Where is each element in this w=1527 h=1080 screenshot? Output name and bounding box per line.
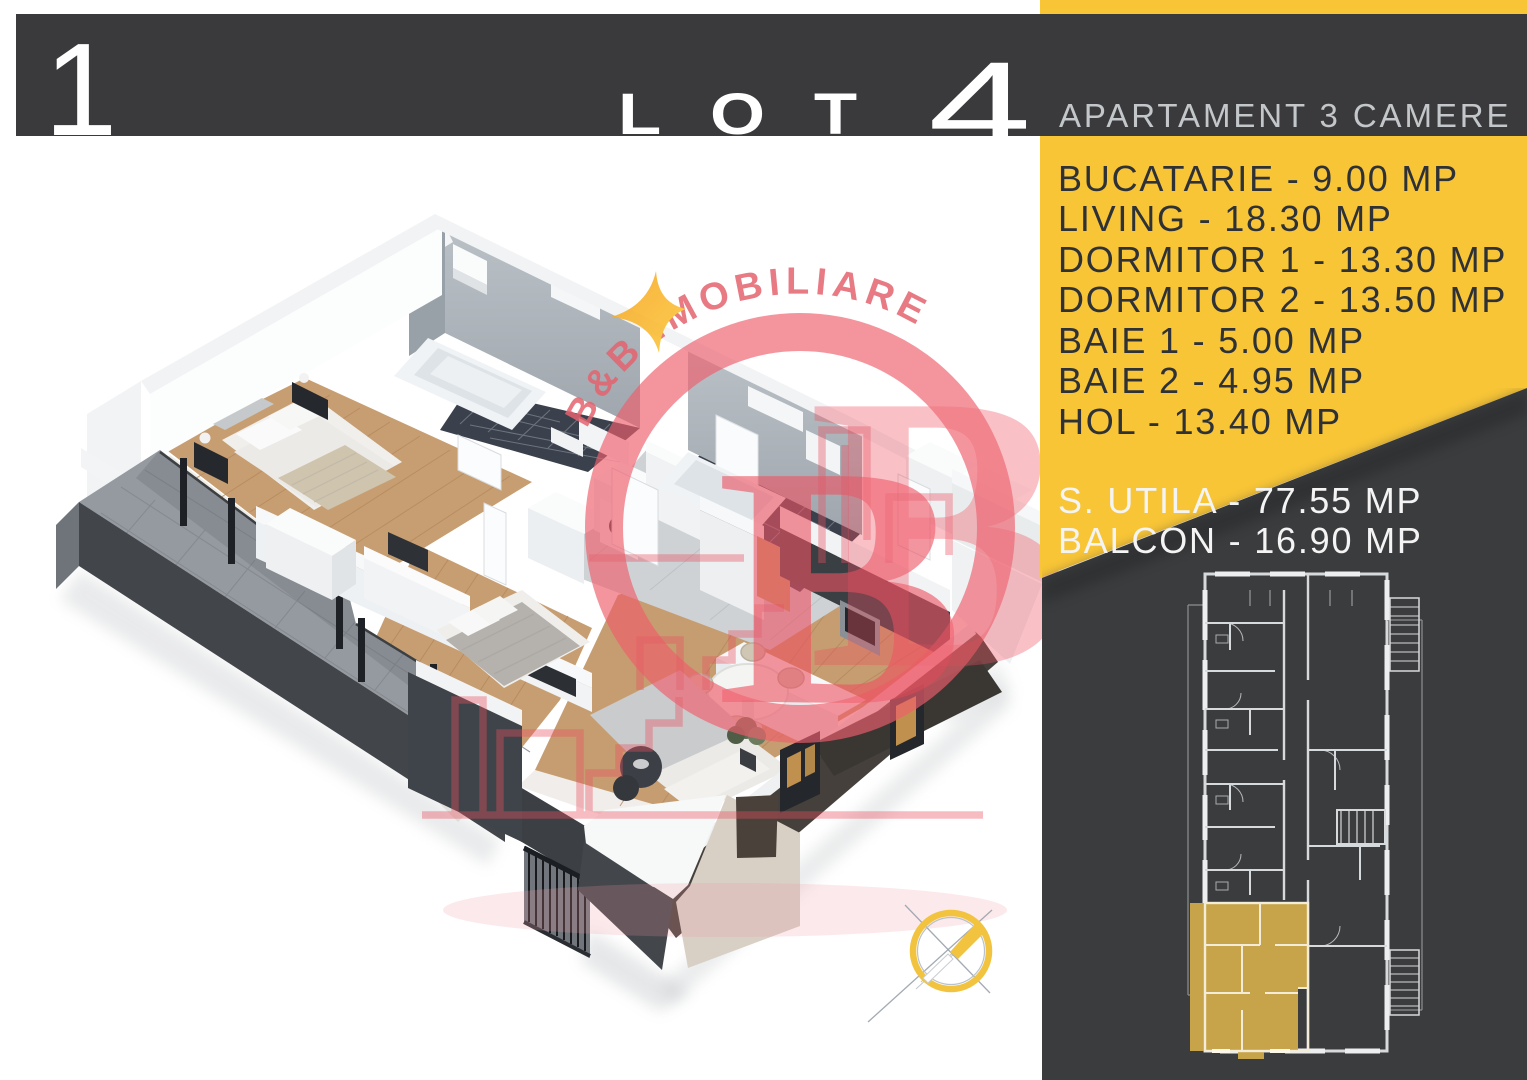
svg-text:B: B bbox=[716, 395, 965, 777]
